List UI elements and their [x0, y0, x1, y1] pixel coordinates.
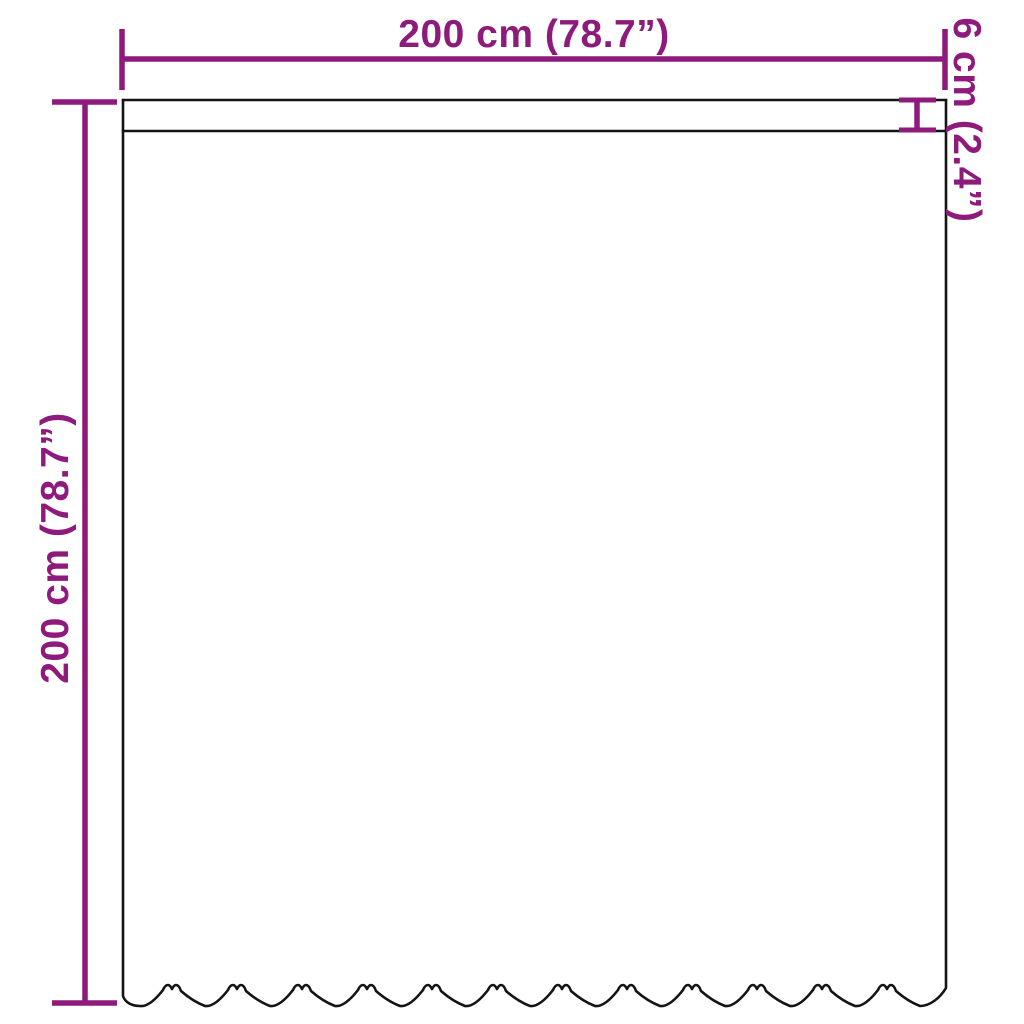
dimension-diagram-canvas: 200 cm (78.7”) 200 cm (78.7”) 6 cm (2.4”…	[0, 0, 1024, 1024]
height-dimension-label: 200 cm (78.7”)	[34, 412, 77, 684]
width-dimension-label: 200 cm (78.7”)	[398, 13, 670, 56]
curtain-outline-and-hem-wave	[123, 100, 946, 1006]
width-dimension: 200 cm (78.7”)	[122, 13, 945, 90]
header-dimension-label: 6 cm (2.4”)	[945, 18, 988, 223]
height-dimension: 200 cm (78.7”)	[34, 102, 117, 1003]
curtain-dimension-figure: 200 cm (78.7”) 200 cm (78.7”) 6 cm (2.4”…	[0, 0, 1024, 1024]
